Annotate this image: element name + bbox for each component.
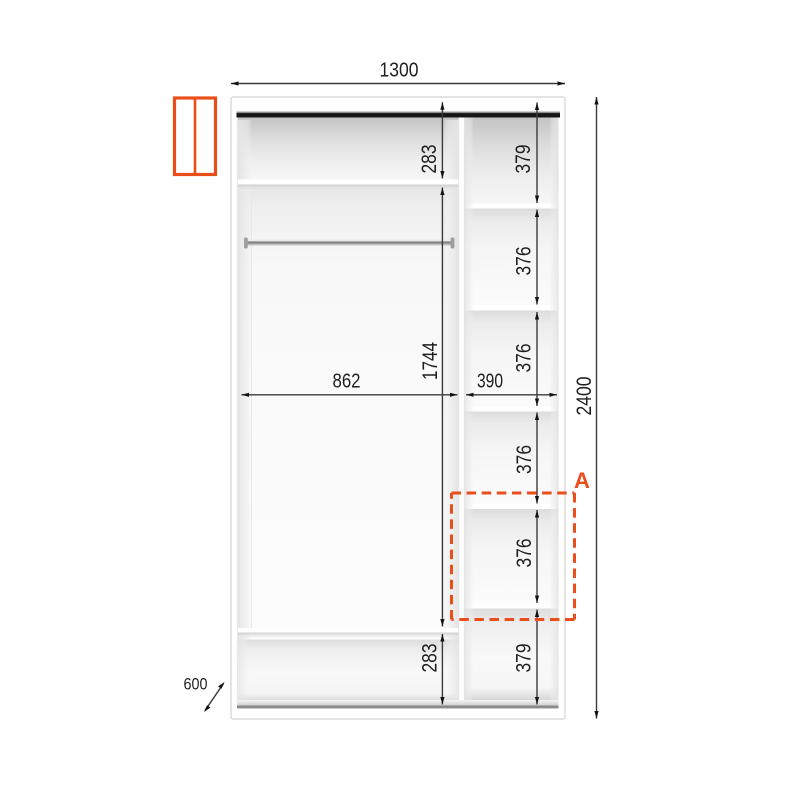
- svg-text:376: 376: [513, 247, 536, 276]
- svg-text:390: 390: [477, 371, 503, 393]
- svg-text:862: 862: [333, 371, 361, 393]
- svg-text:376: 376: [513, 539, 536, 568]
- svg-text:283: 283: [419, 644, 442, 673]
- svg-text:376: 376: [513, 344, 536, 373]
- svg-text:1744: 1744: [419, 342, 442, 380]
- svg-text:379: 379: [512, 145, 535, 174]
- svg-text:A: A: [574, 468, 590, 493]
- svg-text:1300: 1300: [380, 60, 419, 82]
- svg-text:376: 376: [513, 445, 536, 474]
- svg-text:2400: 2400: [573, 377, 596, 416]
- svg-text:600: 600: [184, 676, 208, 694]
- svg-text:379: 379: [513, 644, 536, 673]
- svg-text:283: 283: [418, 145, 441, 174]
